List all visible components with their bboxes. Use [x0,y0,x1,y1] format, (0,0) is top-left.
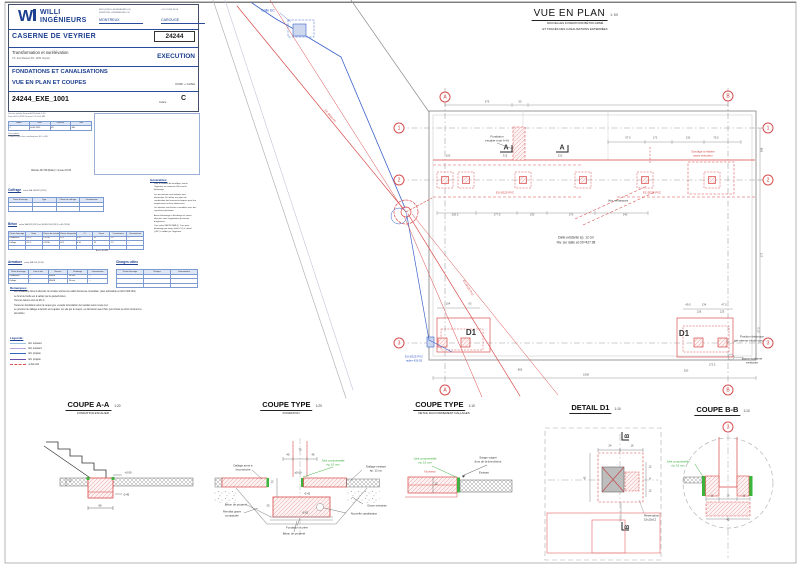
armature-norm: selon SIA 262 (2013) [24,262,43,264]
legend-label: EC existant [29,342,42,345]
beton-norm: selon SIA 262 (2013) et SN EN 206 (2013)… [19,224,70,226]
key-plan-box [94,113,200,175]
plan-title-text: VUE EN PLAN [532,8,608,21]
plan-foundation-band [433,127,755,225]
plan-title: VUE EN PLAN1:50 NOUVELLES FONDATIONS BÉT… [532,8,619,31]
revision-table: IndiceDateDessinéViséC04.04.2023VDMB [8,121,92,131]
doc-title-1: FONDATIONS ET CANALISATIONS [12,69,108,75]
generalites-notes: Généralités: Pour le contrôle du ferrail… [150,178,197,236]
detail-d1-title: DETAIL D11:10 [569,403,620,412]
armature-title: Armature [8,260,22,264]
plan-detail-d1-left [427,318,490,352]
coupe-type1-title: COUPE TYPE1:20 FONDATION [260,400,322,415]
legend-item: à démolir [10,362,42,367]
plan-subtitle-2: ET TRACÉS DES CANALISATIONS ENTERRÉES [532,27,619,31]
office-carouge: CAROUGE [161,18,205,24]
remarques-notes: Remarques: Les fondations doivent attein… [10,286,142,317]
plan-scale: 1:50 [610,13,618,17]
coupe-bb-title: COUPE B-B1:10 [694,405,749,414]
project-address: Ch. des Rasses 84, 1255 Veyrier [12,57,50,60]
charges-title: Charges utiles [116,260,138,264]
office-montreux: MONTREUX [99,18,143,24]
charges-table: Charges utiles Partie d'ouvrageChargesCo… [116,250,198,288]
plan-building [429,111,756,360]
coupe-type2-title: COUPE TYPE1:10 DETAIL RACCORDEMENT DALLA… [413,400,475,415]
contact-phone: +41 21 963 44 66 [161,9,178,12]
project-number: 24244 [154,31,195,42]
company-logo: W [18,8,36,26]
contact-web: WWW.WILLI-INGENIEURS.CH [99,12,130,15]
legend-swatch [10,364,26,365]
legend-label: à démolir [29,363,40,366]
legend: Légende: EC existantEU existantEC projet… [10,336,42,367]
legend-swatch [10,359,26,360]
legend-swatch [10,353,26,354]
plan-grid-axes [399,88,770,383]
coupe-type-fondation-drawing [214,438,380,534]
canal-network [213,0,558,398]
title-block: W WILLI INGÉNIEURS INFO@WILLI-INGENIEURS… [8,4,199,112]
beton-title: Béton [8,222,17,226]
coffrage-title: Coffrage [8,188,21,192]
legend-label: EU projeté [29,358,41,361]
plan-subtitle-1: NOUVELLES FONDATIONS BÉTON ARMÉ [532,21,619,25]
legend-swatch [10,348,26,349]
legend-title: Légende: [10,336,42,340]
generalites-title: Généralités: [150,178,197,182]
coupe-aa-drawing [44,442,193,510]
plan-section-cut-marks [500,145,568,152]
remarques-title: Remarques: [10,286,142,290]
coupe-type-raccordement-drawing [405,465,512,497]
doc-number: 24244_EXE_1001 [12,96,69,103]
doc-type: COFF + CANA [175,82,195,86]
description-item: C Mise à jour des canalisations EC et EU [8,136,92,139]
company-name-line2: INGÉNIEURS [40,17,87,25]
doc-title-2: VUE EN PLAN ET COUPES [12,80,86,86]
detail-d1-drawing [545,428,661,560]
legend-label: EC projeté [29,352,41,355]
altitude-note: Altitude 427.98 (Dalle) = niveau ±0.00 [8,169,94,172]
legend-label: EU existant [29,347,42,350]
plan-dim-lines [433,103,762,380]
project-name: CASERNE DE VEYRIER [12,33,96,40]
indice-value: C [181,95,186,102]
beton-table: Bétonselon SIA 262 (2013) et SN EN 206 (… [8,212,144,250]
coffrage-table: Coffrageselon SIA 118/262 (2013) Partie … [8,178,104,212]
phase-label: EXECUTION [157,53,195,60]
meta-line-2: Date 06.10.2022 Dessiné VD Visé MB [8,116,92,119]
armature-unit: Acier: B500B [96,250,108,252]
revision-block: Version initiale Format A1 Échelle 1:50 … [8,113,92,139]
coupe-aa-title: COUPE A-A1:20 FONDATION ESCALIER [65,400,120,415]
coupe-bb-drawing [683,434,773,558]
indice-label: Indice [159,100,166,104]
coffrage-norm: selon SIA 118/262 (2013) [23,190,46,192]
armature-table: Armatureselon SIA 262 (2013)Acier: B500B… [8,250,108,284]
project-desc: Transformation et surélévation [12,50,68,55]
plan-detail-d1-right [677,318,743,360]
legend-swatch [10,343,26,344]
